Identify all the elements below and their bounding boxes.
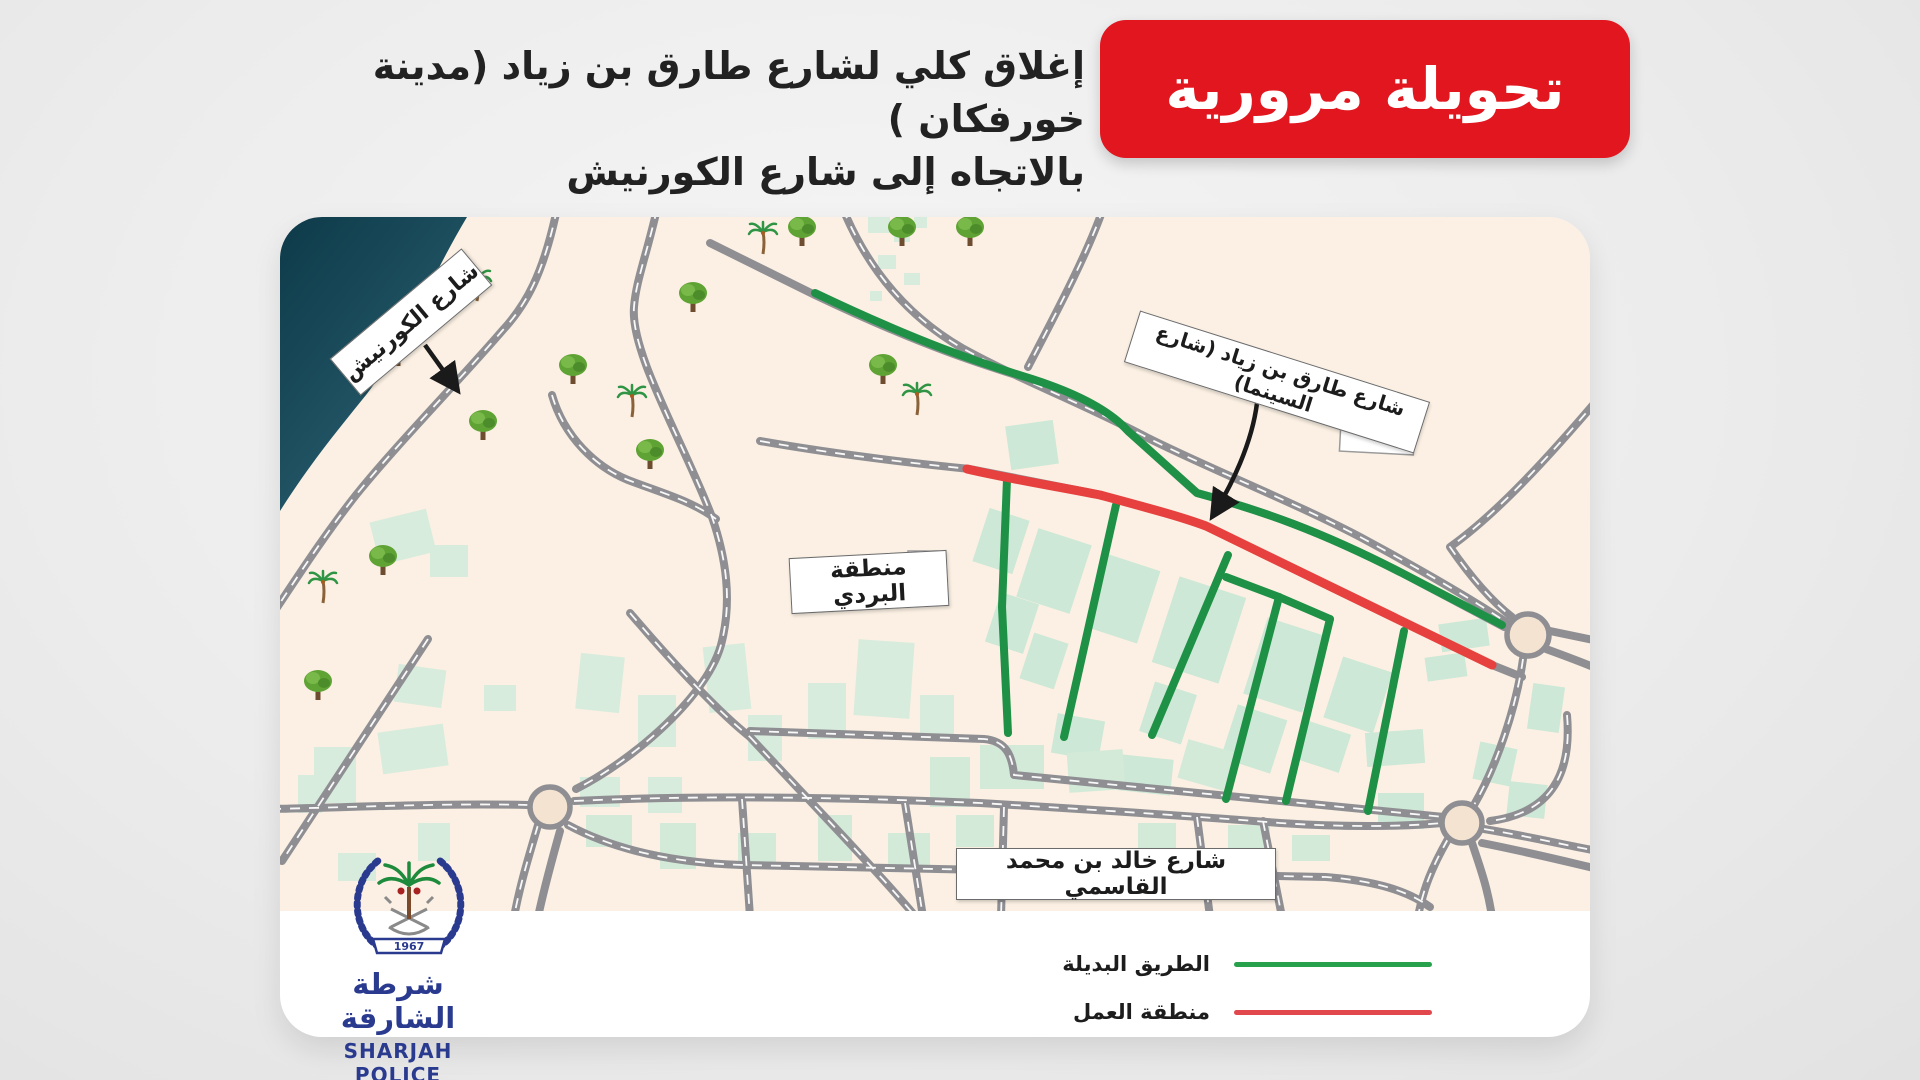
tree-icon	[888, 217, 916, 246]
tree-icon	[869, 354, 897, 384]
roundabout-left	[530, 787, 570, 827]
legend-alternative-route: الطريق البديلة	[1102, 952, 1432, 976]
legend-alternative-label: الطريق البديلة	[1102, 952, 1210, 976]
tree-icon	[559, 354, 587, 384]
map-canvas: شارع الكورنيش شارع طارق بن زياد (شارع ال…	[280, 217, 1590, 911]
closure-headline: إغلاق كلي لشارع طارق بن زياد (مدينة خورف…	[305, 40, 1085, 199]
tree-icon	[679, 282, 707, 312]
legend-red-line	[1234, 1010, 1432, 1015]
palm-icon	[903, 383, 931, 415]
police-name-english: SHARJAH POLICE	[308, 1039, 488, 1080]
palm-icon	[749, 222, 777, 254]
sharjah-police-logo: 1967 شرطة الشارقة SHARJAH POLICE	[308, 847, 488, 1080]
tree-icon	[956, 217, 984, 246]
label-qasimi-street: شارع خالد بن محمد القاسمي	[956, 848, 1276, 900]
map-card: شارع الكورنيش شارع طارق بن زياد (شارع ال…	[280, 217, 1590, 1037]
closure-headline-line2: بالاتجاه إلى شارع الكورنيش	[305, 146, 1085, 199]
roundabout-bottom-right	[1442, 803, 1482, 843]
tree-icon	[788, 217, 816, 246]
emblem-year: 1967	[394, 940, 425, 953]
closure-headline-line1: إغلاق كلي لشارع طارق بن زياد (مدينة خورف…	[305, 40, 1085, 146]
traffic-diversion-banner: تحويلة مرورية	[1100, 20, 1630, 158]
palm-icon	[618, 385, 646, 417]
traffic-diversion-infographic: إغلاق كلي لشارع طارق بن زياد (مدينة خورف…	[0, 0, 1920, 1080]
label-bardi-area: منطقة البردي	[789, 550, 950, 614]
tree-icon	[369, 545, 397, 575]
roundabout-right	[1507, 614, 1549, 656]
banner-title: تحويلة مرورية	[1165, 55, 1564, 123]
label-qasimi-text: شارع خالد بن محمد القاسمي	[957, 848, 1275, 900]
tree-icon	[304, 670, 332, 700]
police-emblem-icon: 1967	[339, 847, 479, 961]
police-name-arabic: شرطة الشارقة	[308, 967, 488, 1035]
corniche-arrow	[425, 345, 458, 391]
palm-icon	[309, 571, 337, 603]
legend-work-zone: منطقة العمل	[1102, 1000, 1432, 1024]
tree-icon	[469, 410, 497, 440]
legend-workzone-label: منطقة العمل	[1102, 1000, 1210, 1024]
label-bardi-text: منطقة البردي	[790, 552, 949, 612]
tree-icon	[636, 439, 664, 469]
map-legend: الطريق البديلة منطقة العمل	[1102, 952, 1432, 1048]
legend-green-line	[1234, 962, 1432, 967]
